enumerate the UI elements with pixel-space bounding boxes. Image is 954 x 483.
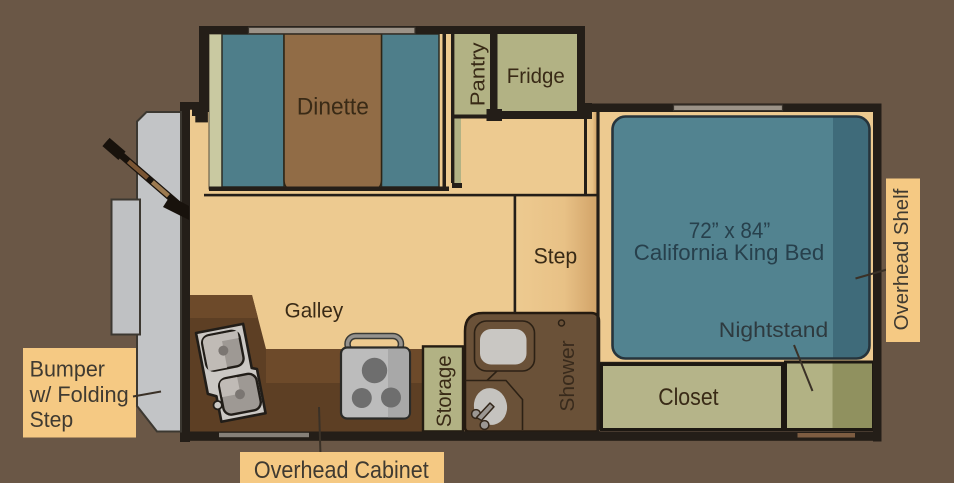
svg-text:Fridge: Fridge (507, 65, 565, 88)
svg-text:Step: Step (534, 244, 578, 269)
svg-text:California King Bed: California King Bed (634, 240, 824, 265)
svg-text:Dinette: Dinette (297, 93, 369, 120)
svg-text:Storage: Storage (433, 355, 456, 427)
svg-text:Galley: Galley (285, 299, 344, 322)
svg-text:Pantry: Pantry (467, 42, 490, 107)
svg-text:Shower: Shower (557, 340, 579, 412)
svg-text:Overhead Shelf: Overhead Shelf (891, 188, 913, 330)
svg-text:Bumper: Bumper (30, 356, 105, 381)
svg-text:Overhead Cabinet: Overhead Cabinet (254, 457, 429, 483)
svg-text:w/ Folding: w/ Folding (29, 382, 129, 407)
svg-text:Nightstand: Nightstand (719, 319, 828, 342)
svg-text:Step: Step (30, 407, 74, 432)
svg-text:Closet: Closet (658, 384, 719, 411)
